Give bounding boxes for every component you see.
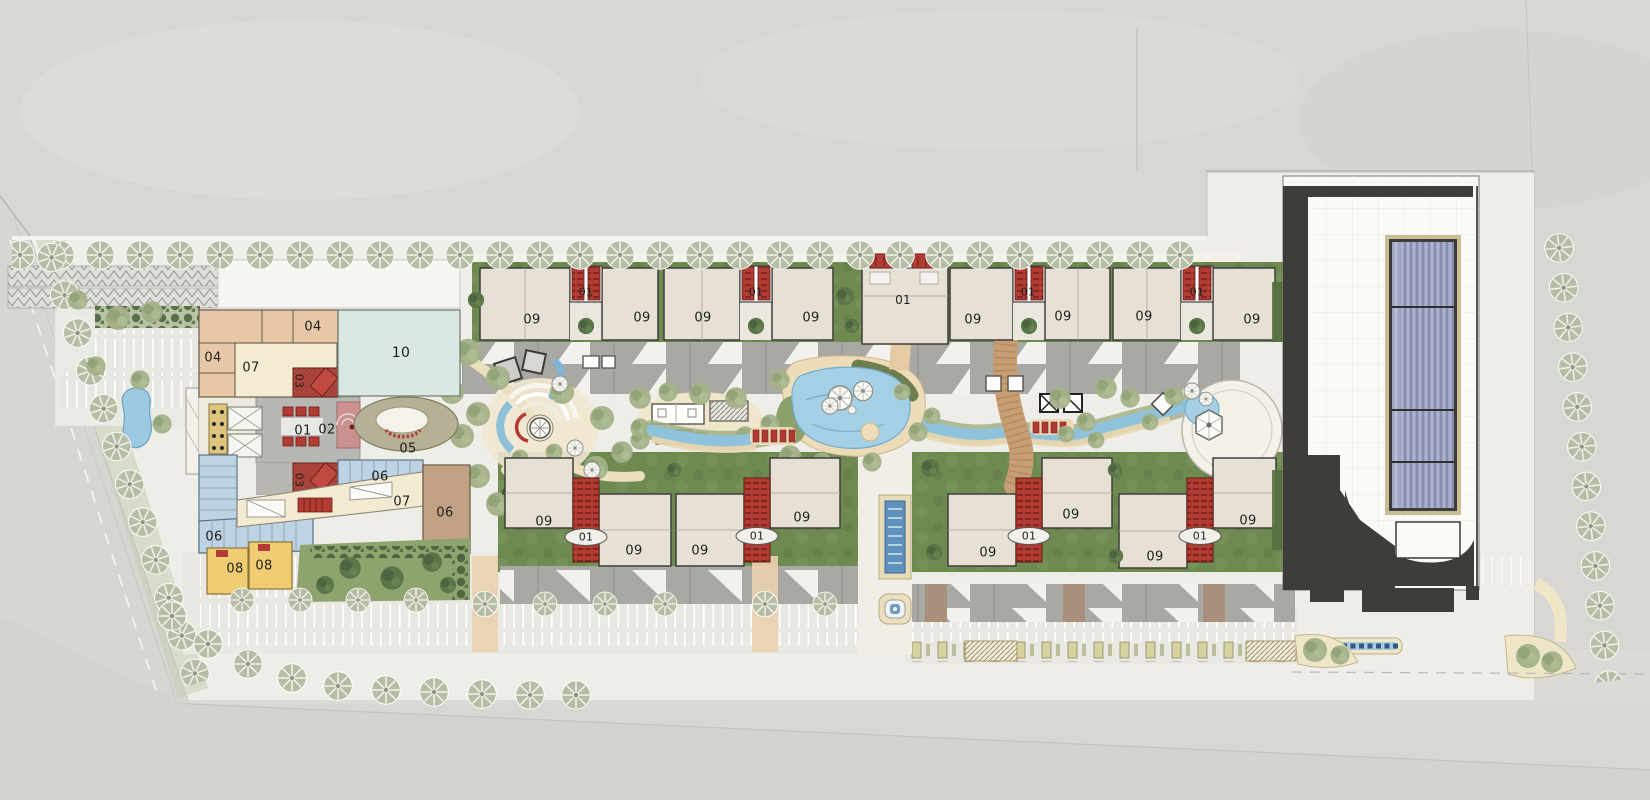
axis-water-features [858,452,912,654]
site-plan-graphic [0,0,1650,800]
hex-pavilion [1196,410,1222,440]
lounger-group-west [750,427,796,445]
retail-building [1272,176,1479,612]
site-plan: 0404070310010205060706060808030901090901… [0,0,1650,800]
